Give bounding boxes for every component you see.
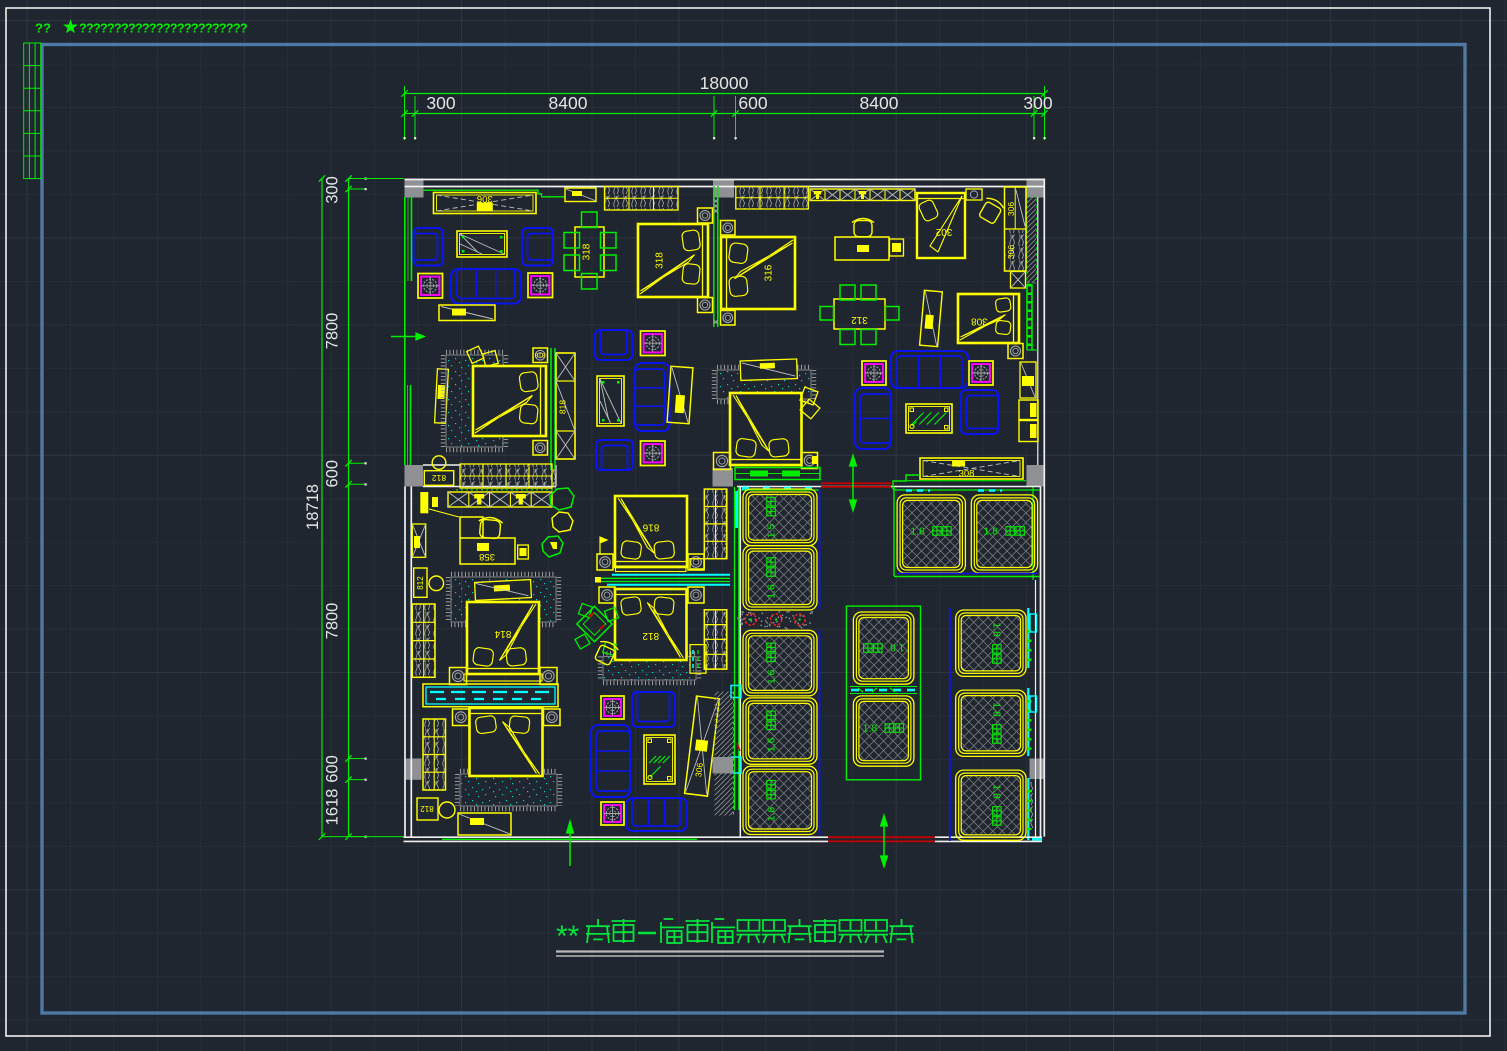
svg-text:816: 816 xyxy=(642,521,659,532)
svg-text:1.6: 1.6 xyxy=(766,669,778,684)
svg-text:600: 600 xyxy=(738,93,767,113)
svg-text:1.8: 1.8 xyxy=(990,622,1002,637)
svg-text:312: 312 xyxy=(851,314,868,325)
svg-text:818: 818 xyxy=(558,400,568,414)
svg-text:600: 600 xyxy=(324,460,342,488)
svg-text:306: 306 xyxy=(1006,245,1016,259)
svg-text:1.8: 1.8 xyxy=(983,525,998,537)
svg-text:7800: 7800 xyxy=(324,603,342,640)
svg-text:1.6: 1.6 xyxy=(766,807,778,822)
svg-text:812: 812 xyxy=(642,630,659,641)
svg-text:308: 308 xyxy=(971,316,988,327)
svg-text:308: 308 xyxy=(959,469,975,480)
svg-text:812: 812 xyxy=(432,473,446,483)
svg-text:1.8: 1.8 xyxy=(990,784,1002,799)
svg-text:306: 306 xyxy=(477,193,493,204)
svg-text:358: 358 xyxy=(479,551,495,562)
svg-text:600: 600 xyxy=(324,755,342,783)
svg-text:1.6: 1.6 xyxy=(766,737,778,752)
svg-text:306: 306 xyxy=(1006,202,1016,216)
svg-text:814: 814 xyxy=(494,628,511,639)
svg-text:7800: 7800 xyxy=(324,313,342,350)
svg-text:300: 300 xyxy=(324,176,342,204)
svg-text:1.6: 1.6 xyxy=(766,584,778,599)
svg-text:1.5: 1.5 xyxy=(766,524,778,539)
svg-text:8400: 8400 xyxy=(549,93,588,113)
svg-text:1.8: 1.8 xyxy=(990,702,1002,717)
svg-text:1.8: 1.8 xyxy=(890,642,905,654)
svg-text:1.8: 1.8 xyxy=(863,723,878,735)
svg-text:1618: 1618 xyxy=(324,789,342,826)
svg-text:18718: 18718 xyxy=(304,484,322,530)
svg-text:318: 318 xyxy=(582,243,593,260)
svg-text:302: 302 xyxy=(935,226,952,237)
svg-text:818: 818 xyxy=(534,351,545,358)
svg-text:300: 300 xyxy=(1023,93,1052,113)
svg-text:318: 318 xyxy=(655,252,666,269)
svg-text:306: 306 xyxy=(693,762,705,778)
svg-text:812: 812 xyxy=(420,804,434,813)
svg-text:316: 316 xyxy=(763,264,774,281)
svg-text:8400: 8400 xyxy=(860,93,899,113)
svg-text:**: ** xyxy=(556,920,580,953)
svg-text:1.8: 1.8 xyxy=(910,525,925,537)
svg-text:????????????????????????: ???????????????????????? xyxy=(79,22,247,36)
svg-text:18000: 18000 xyxy=(700,73,749,93)
svg-text:812: 812 xyxy=(416,576,425,590)
svg-text:??: ?? xyxy=(35,21,51,36)
svg-text:300: 300 xyxy=(426,93,455,113)
